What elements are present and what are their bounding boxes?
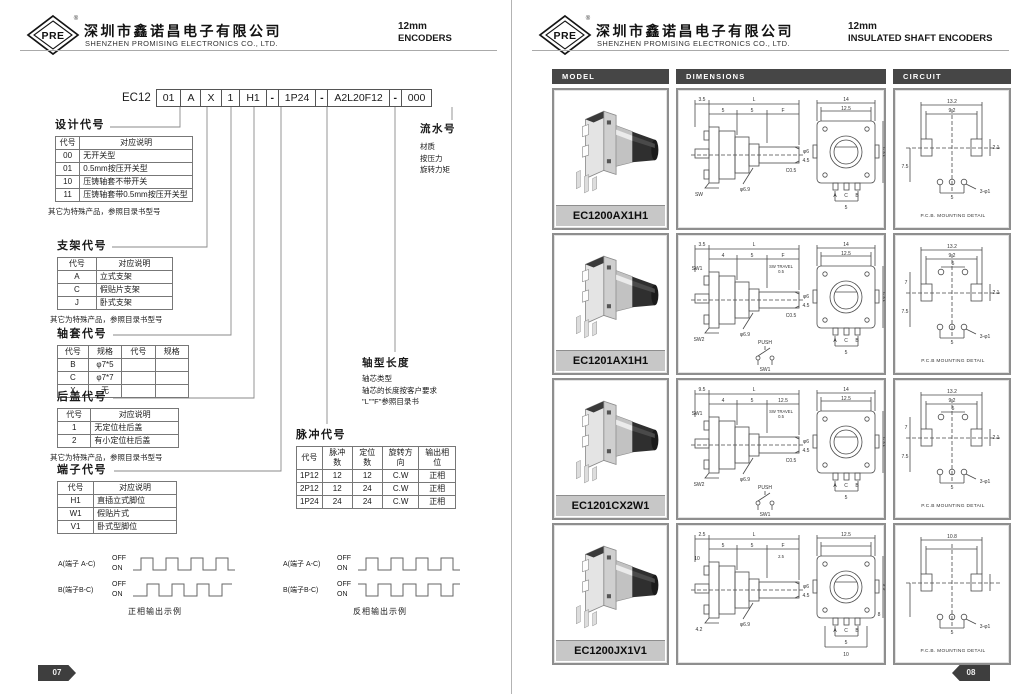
table-cell: C.W: [382, 496, 419, 509]
section-title: 端子代号: [57, 461, 187, 477]
on-label: ON: [112, 590, 126, 600]
dim-label: 10: [694, 556, 700, 562]
section-note: 其它为特殊产品，参照目录书型号: [50, 314, 187, 325]
dim-label: 2.1: [993, 290, 1000, 296]
column-header-circuit: CIRCUIT: [893, 69, 1011, 84]
dim-label: φ6.9: [740, 332, 750, 338]
table-cell: 12: [322, 470, 352, 483]
table-cell: B: [58, 359, 89, 372]
dim-label: 5: [845, 640, 848, 646]
dim-label: 12.5: [841, 396, 851, 402]
table-cell: C.W: [382, 470, 419, 483]
dim-label: PUSH: [758, 340, 772, 346]
table-header-cell: 代号: [56, 137, 80, 150]
table-header-cell: 代号: [58, 346, 89, 359]
dim-label: 9.2: [949, 398, 956, 404]
circuit-caption: P.C.B. MOUNTING DETAIL: [920, 648, 985, 654]
waveform-a-label: A(端子 A-C): [58, 559, 110, 569]
bracket-code-table: 代号对应说明A立式支架C假贴片支架J卧式支架: [57, 257, 173, 310]
table-cell: 卧式型脚位: [94, 521, 177, 534]
table-cell: 立式支架: [96, 271, 172, 284]
model-name: EC1200JX1V1: [556, 640, 665, 661]
table-header-cell: 代号: [58, 409, 91, 422]
waveform-caption: 反相输出示例: [353, 606, 464, 617]
section-title: 轴套代号: [57, 325, 197, 341]
dim-label: 4.5: [803, 593, 810, 599]
dim-label: 7.5: [902, 454, 909, 460]
dim-label: 13.2: [947, 244, 957, 250]
dim-label: 3-φ1: [980, 334, 991, 340]
table-header-cell: 对应说明: [91, 409, 179, 422]
pulse-code-table: 代号脉冲数定位数旋转方向输出相位1P121212C.W正相2P121224C.W…: [296, 446, 456, 509]
section-terminal-code: 端子代号 代号对应说明H1直插立式脚位W1假贴片式V1卧式型脚位: [57, 461, 187, 534]
dim-label: PUSH: [758, 485, 772, 491]
column-header-model: MODEL: [552, 69, 669, 84]
table-cell: [155, 372, 188, 385]
dim-label: 5: [751, 108, 754, 114]
table-header-cell: 定位数: [352, 447, 382, 470]
table-header-cell: 规格: [88, 346, 121, 359]
table-cell: 00: [56, 150, 80, 163]
table-cell: C: [58, 284, 97, 297]
dim-label: C0.5: [786, 458, 797, 464]
circuit-cell: 13.2 9.2 5 7 7.5 2.1 5 3-φ1 P.C.B MOUNTI…: [893, 378, 1011, 520]
table-cell: 2: [58, 435, 91, 448]
circuit-caption: P.C.B. MOUNTING DETAIL: [920, 213, 985, 219]
table-header-cell: 输出相位: [419, 447, 456, 470]
waveform-b-label: B(端子B-C): [283, 585, 335, 595]
dim-label: B: [855, 628, 859, 634]
dim-label: 5: [951, 485, 954, 491]
table-header-cell: 代号: [58, 482, 94, 495]
design-code-table: 代号对应说明00无开关型010.5mm按压开关型10压铸轴套不带开关11压铸轴套…: [55, 136, 193, 202]
dim-label: 5: [952, 261, 955, 267]
table-cell: 01: [56, 163, 80, 176]
dim-label: 5: [751, 543, 754, 549]
dim-label: 0.5: [778, 414, 784, 419]
table-header-cell: 代号: [297, 447, 323, 470]
section-note: 其它为特殊产品，参照目录书型号: [48, 206, 201, 217]
dim-label: SW1: [760, 367, 771, 373]
callout-line: 材质: [420, 141, 456, 153]
dim-label: 13.2: [947, 99, 957, 105]
dim-label: 2.5: [778, 554, 784, 559]
table-cell: 假贴片式: [94, 508, 177, 521]
waveform-b-trace: [356, 580, 464, 600]
table-cell: C.W: [382, 483, 419, 496]
on-label: ON: [112, 564, 126, 574]
table-cell: φ7*7: [88, 372, 121, 385]
dim-label: 4.2: [696, 627, 703, 633]
dim-label: F: [781, 108, 784, 114]
dim-label: 12.5: [841, 532, 851, 538]
dim-label: 6.6: [883, 583, 885, 590]
dim-label: A: [833, 628, 837, 634]
dim-label: 7: [905, 425, 908, 431]
dim-label: 3.5: [699, 97, 706, 103]
dim-label: L: [753, 387, 756, 393]
dimension-drawing: 9.5 L 4 5 12.5 φ6 4.5 C0.5 φ6.9 SW1 SW2 …: [679, 381, 885, 519]
table-cell: 正相: [419, 470, 456, 483]
section-title: 设计代号: [55, 116, 201, 132]
encoder-row: EC1201AX1H1: [552, 233, 1011, 378]
waveform-a-label: A(端子 A-C): [283, 559, 335, 569]
table-header-cell: 代号: [58, 258, 97, 271]
dim-label: 7.5: [902, 309, 909, 315]
waveform-positive: A(端子 A-C) OFFON B(端子B-C) OFFON 正相输出示例: [58, 551, 239, 617]
dim-label: SW2: [694, 482, 705, 488]
dimensions-cell: 9.5 L 4 5 12.5 φ6 4.5 C0.5 φ6.9 SW1 SW2 …: [676, 378, 886, 520]
table-cell: 1P12: [297, 470, 323, 483]
section-design-code: 设计代号 代号对应说明00无开关型010.5mm按压开关型10压铸轴套不带开关1…: [55, 116, 201, 217]
table-cell: 卧式支架: [96, 297, 172, 310]
dim-label: 5: [845, 205, 848, 211]
table-cell: [122, 359, 155, 372]
dim-label: 2.1: [993, 145, 1000, 151]
circuit-cell: 10.8 5 3-φ1 P.C.B. MOUNTING DETAIL: [893, 523, 1011, 665]
dim-label: 5: [845, 350, 848, 356]
table-cell: 压铸轴套带0.5mm按压开关型: [80, 189, 193, 202]
table-cell: 10: [56, 176, 80, 189]
dim-label: B: [855, 338, 859, 344]
dim-label: 5: [722, 543, 725, 549]
table-cell: 正相: [419, 483, 456, 496]
waveform-a-trace: [356, 554, 464, 574]
dim-label: 14: [843, 97, 849, 103]
table-header-cell: 代号: [122, 346, 155, 359]
dim-label: 3.5: [699, 242, 706, 248]
dim-label: 7: [905, 280, 908, 286]
dim-label: 4.5: [803, 448, 810, 454]
encoder-photo: [561, 388, 663, 492]
dim-label: A: [833, 193, 837, 199]
callout-title: 流水号: [420, 121, 456, 136]
table-cell: 12: [352, 470, 382, 483]
encoder-row: EC1200JX1V1: [552, 523, 1011, 668]
section-bracket-code: 支架代号 代号对应说明A立式支架C假贴片支架J卧式支架 其它为特殊产品，参照目录…: [57, 237, 187, 325]
table-cell: [155, 359, 188, 372]
dim-label: SW: [695, 192, 703, 198]
table-cell: 无开关型: [80, 150, 193, 163]
dim-label: 2.1: [993, 435, 1000, 441]
model-cell: EC1200AX1H1: [552, 88, 669, 230]
callout-line: 按压力: [420, 153, 456, 165]
product-type: INSULATED SHAFT ENCODERS: [848, 33, 992, 44]
dimension-drawing: 3.5 L 5 5 F φ6 4.5 C0.5 φ6.9 SW: [679, 91, 885, 229]
table-cell: 无定位柱后盖: [91, 422, 179, 435]
dim-label: SW1: [692, 266, 703, 272]
dim-label: 9.2: [949, 253, 956, 259]
circuit-drawing: 13.2 9.2 5 7 7.5 2.1 5 3-φ1 P.C.B MOUNTI…: [896, 236, 1010, 374]
dim-label: C0.5: [786, 168, 797, 174]
dim-label: A: [833, 483, 837, 489]
dim-label: φ6.9: [740, 622, 750, 628]
waveform-negative: A(端子 A-C) OFFON B(端子B-C) OFFON 反相输出示例: [283, 551, 464, 617]
dim-label: 0.5: [778, 269, 784, 274]
dim-label: 9.5: [699, 387, 706, 393]
dim-label: φ6: [803, 584, 809, 590]
dim-label: φ6: [803, 294, 809, 300]
table-cell: C: [58, 372, 89, 385]
dimensions-cell: 3.5 L 5 5 F φ6 4.5 C0.5 φ6.9 SW: [676, 88, 886, 230]
table-cell: [122, 372, 155, 385]
column-header-dimensions: DIMENSIONS: [676, 69, 886, 84]
dim-label: L: [753, 97, 756, 103]
dimension-drawing: 3.5 L 4 5 F φ6 4.5 C0.5 φ6.9 SW1 SW2 SW …: [679, 236, 885, 374]
waveform-b-trace: [131, 580, 239, 600]
table-header-cell: 对应说明: [96, 258, 172, 271]
table-cell: φ7*5: [88, 359, 121, 372]
company-name-cn: 深圳市鑫诺昌电子有限公司: [596, 21, 794, 41]
encoder-photo: [561, 533, 663, 637]
dimensions-cell: 2.5 L 5 5 F φ6 4.5 φ6.9 10 4.2 2.5: [676, 523, 886, 665]
table-cell: J: [58, 297, 97, 310]
dim-label: φ6.9: [740, 187, 750, 193]
dim-label: 3-φ1: [980, 189, 991, 195]
table-cell: 假贴片支架: [96, 284, 172, 297]
model-name: EC1200AX1H1: [556, 205, 665, 226]
circuit-cell: 13.2 9.2 5 7 7.5 2.1 5 3-φ1 P.C.B MOUNTI…: [893, 233, 1011, 375]
circuit-drawing: 10.8 5 3-φ1 P.C.B. MOUNTING DETAIL: [896, 526, 1010, 664]
model-name: EC1201AX1H1: [556, 350, 665, 371]
model-cell: EC1201CX2W1: [552, 378, 669, 520]
dim-label: 5: [951, 195, 954, 201]
dimension-drawing: 2.5 L 5 5 F φ6 4.5 φ6.9 10 4.2 2.5: [679, 526, 885, 664]
pre-logo: PRE ®: [537, 14, 593, 58]
circuit-caption: P.C.B MOUNTING DETAIL: [921, 358, 984, 364]
dim-label: 10: [843, 652, 849, 658]
off-label: OFF: [112, 580, 126, 590]
circuit-drawing: 13.2 9.2 7.5 2.1 5 3-φ1 P.C.B. MOUNTING …: [896, 91, 1010, 229]
encoder-photo: [561, 98, 663, 202]
dim-label: B: [855, 483, 859, 489]
dim-label: C: [844, 338, 848, 344]
table-cell: 0.5mm按压开关型: [80, 163, 193, 176]
company-name-en: SHENZHEN PROMISING ELECTRONICS CO., LTD.: [597, 39, 790, 48]
waveform-b-label: B(端子B-C): [58, 585, 110, 595]
model-cell: EC1201AX1H1: [552, 233, 669, 375]
section-pulse-code: 脉冲代号 代号脉冲数定位数旋转方向输出相位1P121212C.W正相2P1212…: [296, 426, 466, 509]
dim-label: 12.5: [778, 398, 788, 404]
circuit-caption: P.C.B MOUNTING DETAIL: [921, 503, 984, 509]
page-left: PRE ® 深圳市鑫诺昌电子有限公司 SHENZHEN PROMISING EL…: [0, 0, 511, 694]
dim-label: 9.2: [949, 108, 956, 114]
callout-title: 轴型长度: [362, 355, 437, 370]
on-label: ON: [337, 590, 351, 600]
dim-label: 13.2: [883, 292, 885, 302]
waveform-a-trace: [131, 554, 239, 574]
table-cell: W1: [58, 508, 94, 521]
dim-label: 3-φ1: [980, 479, 991, 485]
dim-label: 14: [843, 242, 849, 248]
table-cell: 正相: [419, 496, 456, 509]
dim-label: F: [781, 543, 784, 549]
dim-label: 5: [751, 398, 754, 404]
dim-label: φ6: [803, 439, 809, 445]
svg-text:PRE: PRE: [553, 30, 576, 42]
table-header-cell: 规格: [155, 346, 188, 359]
back-cover-code-table: 代号对应说明1无定位柱后盖2有小定位柱后盖: [57, 408, 179, 448]
section-title: 脉冲代号: [296, 426, 466, 442]
callout-line: "L""F"参照目录书: [362, 396, 437, 408]
dimensions-cell: 3.5 L 4 5 F φ6 4.5 C0.5 φ6.9 SW1 SW2 SW …: [676, 233, 886, 375]
dim-label: 4: [722, 398, 725, 404]
table-cell: 2P12: [297, 483, 323, 496]
table-cell: 有小定位柱后盖: [91, 435, 179, 448]
table-header-cell: 旋转方向: [382, 447, 419, 470]
callout-shaft-length: 轴型长度 轴芯类型 轴芯的长度按客户要求 "L""F"参照目录书: [362, 355, 437, 408]
dim-label: 4.5: [803, 303, 810, 309]
callout-line: 轴芯的长度按客户要求: [362, 385, 437, 397]
table-cell: V1: [58, 521, 94, 534]
dim-label: 14: [843, 387, 849, 393]
callout-line: 旋转力矩: [420, 164, 456, 176]
dim-label: 5: [951, 340, 954, 346]
dim-label: C0.5: [786, 313, 797, 319]
registered-trademark-mark: ®: [586, 15, 591, 22]
dim-label: 13.2: [947, 389, 957, 395]
table-cell: 24: [352, 483, 382, 496]
dim-label: C: [844, 628, 848, 634]
off-label: OFF: [112, 554, 126, 564]
dim-label: 13.2: [883, 147, 885, 157]
encoder-rows: EC1200AX1H1: [552, 88, 1011, 668]
model-cell: EC1200JX1V1: [552, 523, 669, 665]
dim-label: 2.5: [699, 532, 706, 538]
dim-label: SW1: [692, 411, 703, 417]
encoder-row: EC1201CX2W1: [552, 378, 1011, 523]
table-cell: 11: [56, 189, 80, 202]
table-cell: 1P24: [297, 496, 323, 509]
table-header-cell: 脉冲数: [322, 447, 352, 470]
waveform-caption: 正相输出示例: [128, 606, 239, 617]
dim-label: 3-φ1: [980, 624, 991, 630]
table-cell: 24: [322, 496, 352, 509]
table-header-cell: 对应说明: [80, 137, 193, 150]
dim-label: SW2: [694, 337, 705, 343]
encoder-photo: [561, 243, 663, 347]
on-label: ON: [337, 564, 351, 574]
table-cell: 直插立式脚位: [94, 495, 177, 508]
table-cell: 12: [322, 483, 352, 496]
dim-label: A: [833, 338, 837, 344]
dim-label: F: [781, 253, 784, 259]
header-rule: [532, 50, 1009, 51]
dim-label: φ6.9: [740, 477, 750, 483]
callout-line: 轴芯类型: [362, 373, 437, 385]
table-cell: 24: [352, 496, 382, 509]
dim-label: L: [753, 532, 756, 538]
table-cell: 压铸轴套不带开关: [80, 176, 193, 189]
page-number-left: 07: [38, 665, 76, 681]
dim-label: 13.2: [883, 437, 885, 447]
dim-label: SW1: [760, 512, 771, 518]
dim-label: 8: [878, 612, 881, 618]
dim-label: 7.5: [902, 164, 909, 170]
circuit-cell: 13.2 9.2 7.5 2.1 5 3-φ1 P.C.B. MOUNTING …: [893, 88, 1011, 230]
off-label: OFF: [337, 580, 351, 590]
section-back-cover-code: 后盖代号 代号对应说明1无定位柱后盖2有小定位柱后盖 其它为特殊产品，参照目录书…: [57, 388, 187, 463]
model-name: EC1201CX2W1: [556, 495, 665, 516]
dim-label: C: [844, 483, 848, 489]
dim-label: 4: [722, 253, 725, 259]
table-cell: 1: [58, 422, 91, 435]
callout-serial-number: 流水号 材质 按压力 旋转力矩: [420, 121, 456, 176]
page-number-right: 08: [952, 665, 990, 681]
dim-label: 5: [952, 406, 955, 412]
dim-label: 12.5: [841, 251, 851, 257]
table-header-cell: 对应说明: [94, 482, 177, 495]
encoder-row: EC1200AX1H1: [552, 88, 1011, 233]
table-cell: H1: [58, 495, 94, 508]
circuit-drawing: 13.2 9.2 5 7 7.5 2.1 5 3-φ1 P.C.B MOUNTI…: [896, 381, 1010, 519]
dim-label: 5: [751, 253, 754, 259]
section-title: 支架代号: [57, 237, 187, 253]
product-size: 12mm: [848, 21, 877, 32]
dim-label: C: [844, 193, 848, 199]
off-label: OFF: [337, 554, 351, 564]
dim-label: 5: [845, 495, 848, 501]
dim-label: φ6: [803, 149, 809, 155]
dim-label: 5: [951, 630, 954, 636]
dim-label: L: [753, 242, 756, 248]
dim-label: 12.5: [841, 106, 851, 112]
dim-label: B: [855, 193, 859, 199]
table-cell: A: [58, 271, 97, 284]
dim-label: 4.5: [803, 158, 810, 164]
dim-label: 5: [722, 108, 725, 114]
section-title: 后盖代号: [57, 388, 187, 404]
dim-label: 10.8: [947, 534, 957, 540]
terminal-code-table: 代号对应说明H1直插立式脚位W1假贴片式V1卧式型脚位: [57, 481, 177, 534]
